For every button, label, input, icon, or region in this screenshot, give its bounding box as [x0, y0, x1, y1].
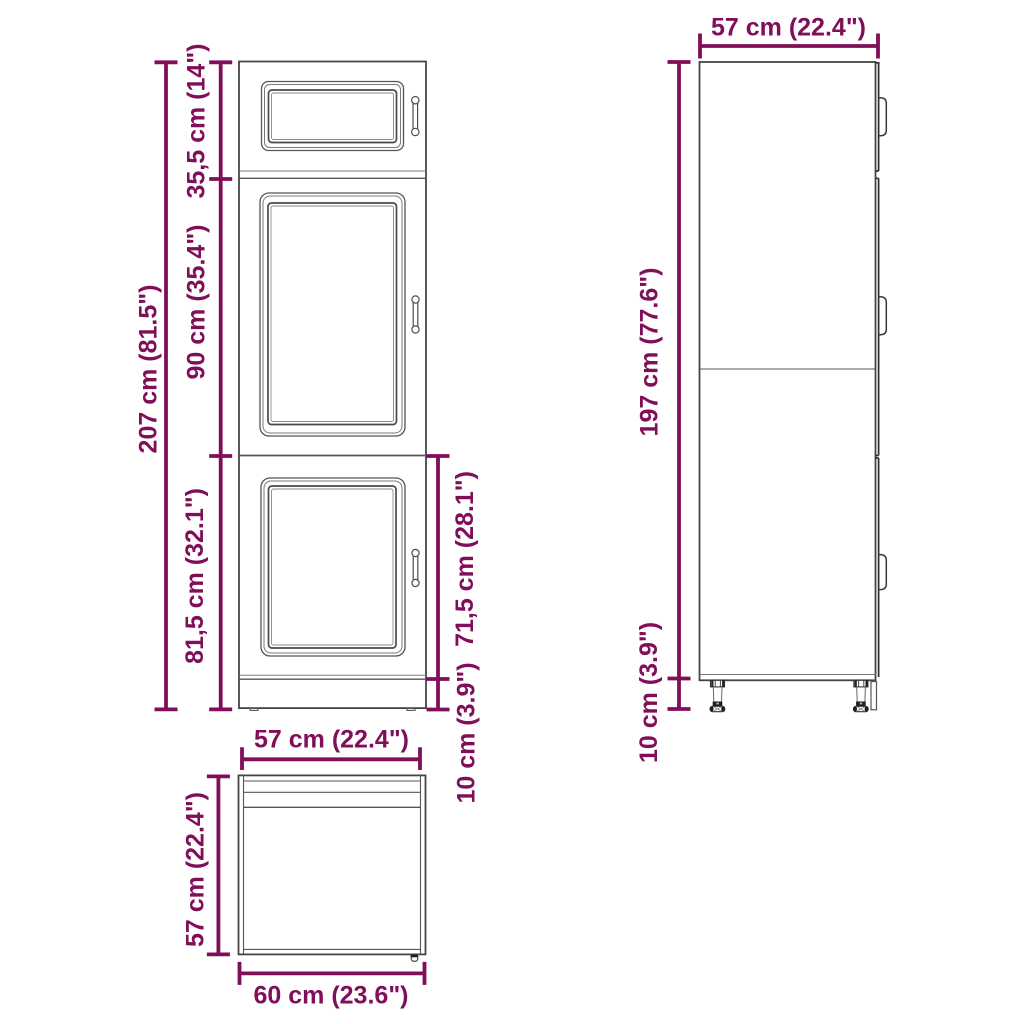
svg-text:10 cm (3.9"): 10 cm (3.9")	[635, 622, 663, 763]
svg-text:90 cm (35.4"): 90 cm (35.4")	[183, 225, 211, 380]
svg-text:197 cm (77.6"): 197 cm (77.6")	[636, 268, 664, 437]
svg-text:57 cm (22.4"): 57 cm (22.4")	[254, 726, 409, 754]
svg-text:81,5 cm (32.1"): 81,5 cm (32.1")	[181, 488, 209, 664]
svg-text:35,5 cm (14"): 35,5 cm (14")	[183, 44, 211, 199]
svg-text:57 cm (22.4"): 57 cm (22.4")	[711, 14, 866, 42]
svg-text:71,5 cm (28.1"): 71,5 cm (28.1")	[451, 471, 479, 647]
svg-text:207 cm (81.5"): 207 cm (81.5")	[135, 285, 163, 454]
svg-text:57 cm (22.4"): 57 cm (22.4")	[182, 792, 210, 947]
svg-text:10 cm (3.9"): 10 cm (3.9")	[453, 662, 481, 803]
svg-text:60 cm (23.6"): 60 cm (23.6")	[254, 982, 409, 1010]
